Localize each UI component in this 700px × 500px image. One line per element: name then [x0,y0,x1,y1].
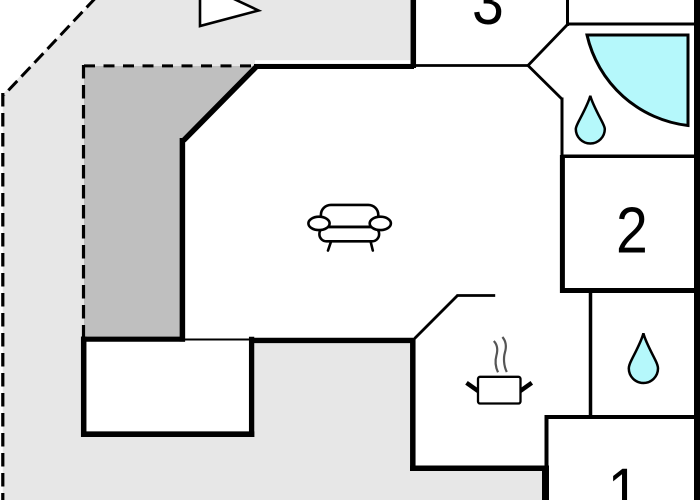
svg-text:2: 2 [616,194,648,266]
svg-text:3: 3 [472,0,504,38]
svg-text:1: 1 [608,455,640,500]
